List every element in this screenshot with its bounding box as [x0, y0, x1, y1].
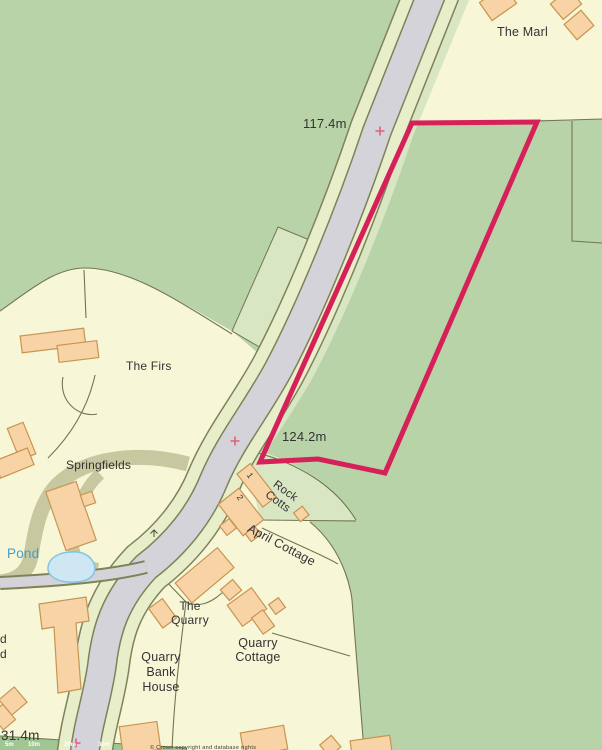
attribution-text: © Crown copyright and database rights	[150, 745, 256, 750]
scale-tick-5m: 5m	[5, 742, 14, 749]
label-spot-height-mid: 124.2m	[282, 430, 327, 445]
label-the-firs: The Firs	[126, 360, 172, 374]
scale-tick-10m: 10m	[28, 742, 40, 749]
label-the-quarry-line1: The	[163, 600, 217, 614]
os-map-screenshot: The Marl 117.4m 124.2m The Firs Springfi…	[0, 0, 602, 750]
label-qbh-line3: House	[135, 680, 187, 695]
label-quarry-cottage-line2: Cottage	[226, 650, 290, 664]
pond-shape	[48, 552, 95, 582]
label-qbh-line1: Quarry	[135, 650, 187, 665]
label-edge-cut-2: d	[0, 648, 7, 662]
label-edge-cut-1: d	[0, 633, 7, 647]
label-springfields: Springfields	[66, 459, 131, 473]
scale-tick-30m: 30m	[98, 742, 110, 749]
label-quarry-bank-house: Quarry Bank House	[135, 650, 187, 695]
map-canvas	[0, 0, 602, 750]
scale-tick-20m: 20m	[64, 742, 76, 749]
label-quarry-cottage: Quarry Cottage	[226, 636, 290, 665]
label-the-marl: The Marl	[497, 25, 548, 39]
label-the-quarry: The Quarry	[163, 600, 217, 628]
label-qbh-line2: Bank	[135, 665, 187, 680]
label-pond: Pond	[7, 546, 39, 562]
label-quarry-cottage-line1: Quarry	[226, 636, 290, 650]
label-spot-height-top: 117.4m	[303, 117, 347, 132]
label-the-quarry-line2: Quarry	[163, 614, 217, 628]
